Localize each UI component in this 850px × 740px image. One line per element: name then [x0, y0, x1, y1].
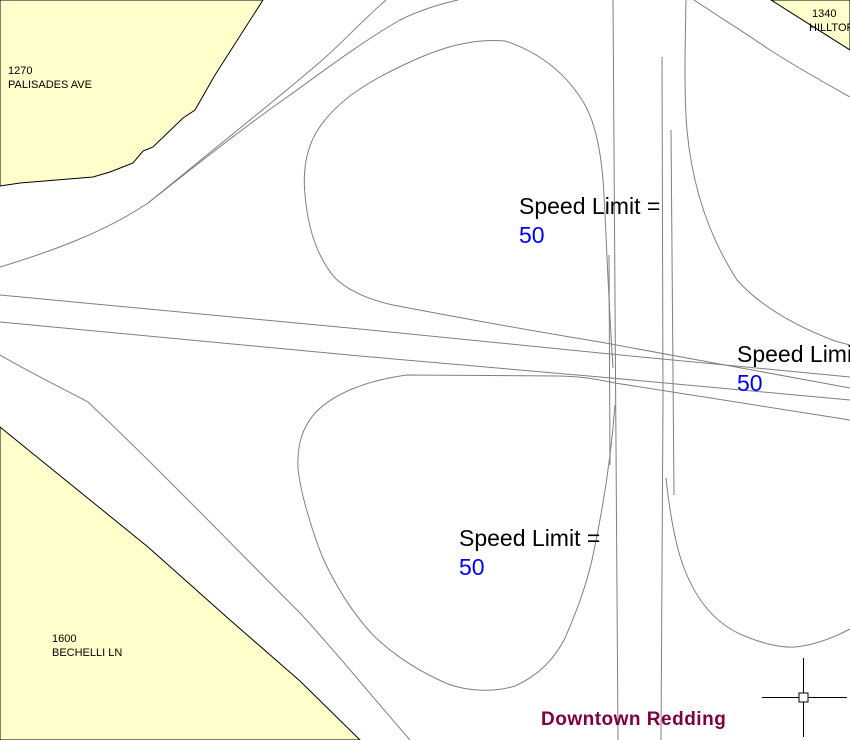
zone-polygons	[0, 0, 850, 740]
zone-polygon-palisades	[0, 0, 263, 186]
zone-label-hilltop: 1340 HILLTOP	[809, 7, 850, 35]
zone-address-number: 1340	[812, 7, 850, 21]
map-canvas[interactable]	[0, 0, 850, 740]
speed-limit-value: 50	[519, 221, 660, 250]
zone-polygon-bechelli	[0, 427, 360, 740]
zone-street-name: HILLTOP	[809, 21, 850, 35]
zone-street-name: BECHELLI LN	[52, 646, 122, 660]
northeast-ramp-inner	[685, 0, 850, 345]
speed-limit-label-east: Speed Limit = 50	[737, 340, 850, 398]
map-viewport[interactable]: 1270 PALISADES AVE 1340 HILLTOP 1600 BEC…	[0, 0, 850, 740]
zone-address-number: 1600	[52, 632, 122, 646]
southeast-ramp	[666, 478, 850, 647]
freeway-inner-line-west	[609, 255, 610, 465]
arterial-south-edge	[0, 322, 850, 400]
freeway-west-edge	[613, 0, 618, 740]
zone-address-number: 1270	[8, 64, 92, 78]
freeway-inner-line-east	[671, 130, 674, 495]
speed-limit-label-north: Speed Limit = 50	[519, 192, 660, 250]
zone-street-name: PALISADES AVE	[8, 78, 92, 92]
zone-label-bechelli: 1600 BECHELLI LN	[52, 632, 122, 660]
speed-limit-text: Speed Limit =	[459, 525, 600, 551]
pickbox	[799, 693, 808, 702]
speed-limit-value: 50	[737, 369, 850, 398]
area-label-downtown-redding: Downtown Redding	[541, 709, 726, 731]
speed-limit-text: Speed Limit =	[737, 341, 850, 367]
crosshair-cursor	[762, 658, 847, 737]
speed-limit-text: Speed Limit =	[519, 193, 660, 219]
speed-limit-value: 50	[459, 553, 600, 582]
speed-limit-label-south: Speed Limit = 50	[459, 524, 600, 582]
zone-label-palisades: 1270 PALISADES AVE	[8, 64, 92, 92]
freeway-east-edge	[661, 57, 663, 740]
